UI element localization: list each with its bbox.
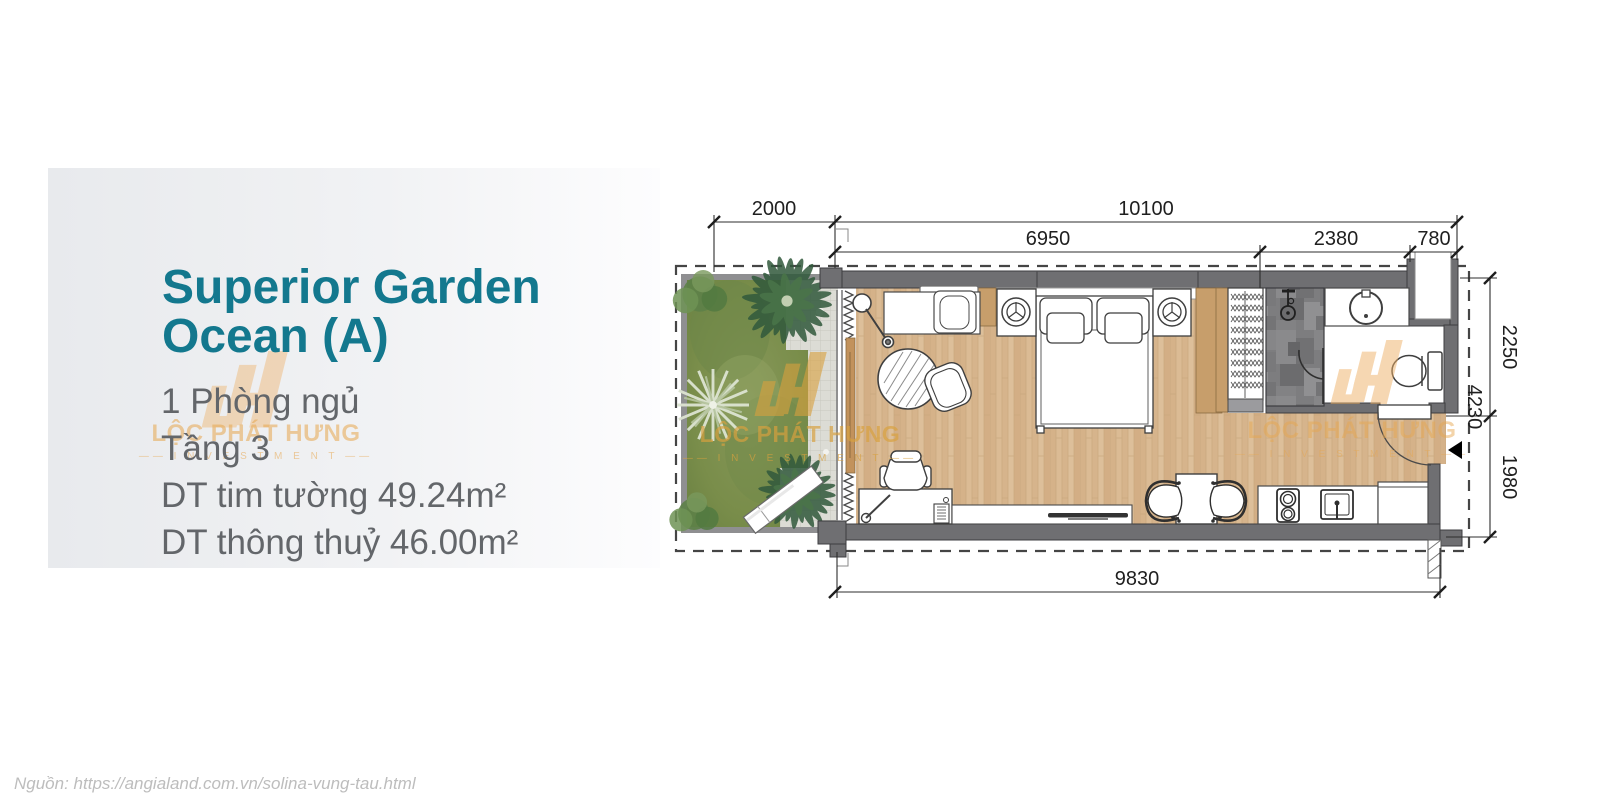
svg-text:780: 780 <box>1417 228 1450 250</box>
svg-text:Nguồn: https://angialand.com.v: Nguồn: https://angialand.com.vn/solina-v… <box>14 774 417 793</box>
svg-text:Ocean (A): Ocean (A) <box>162 310 389 363</box>
svg-text:Tầng 3: Tầng 3 <box>161 429 270 468</box>
svg-text:4230: 4230 <box>1463 385 1485 430</box>
svg-text:DT tim tường 49.24m²: DT tim tường 49.24m² <box>161 476 506 515</box>
svg-text:2000: 2000 <box>752 198 797 220</box>
svg-text:1980: 1980 <box>1498 455 1520 500</box>
svg-text:6950: 6950 <box>1026 228 1071 250</box>
svg-text:9830: 9830 <box>1115 568 1160 590</box>
svg-text:10100: 10100 <box>1118 198 1174 220</box>
svg-text:LỘC PHÁT HƯNG: LỘC PHÁT HƯNG <box>1247 416 1456 444</box>
svg-text:2380: 2380 <box>1314 228 1359 250</box>
svg-text:LỘC PHÁT HƯNG: LỘC PHÁT HƯNG <box>700 420 901 447</box>
svg-text:—— I N V E S T M E N T ——: —— I N V E S T M E N T —— <box>1235 449 1469 460</box>
svg-text:Superior Garden: Superior Garden <box>162 261 541 314</box>
svg-text:DT thông thuỷ 46.00m²: DT thông thuỷ 46.00m² <box>161 523 518 562</box>
svg-text:2250: 2250 <box>1498 325 1520 370</box>
svg-text:1 Phòng ngủ: 1 Phòng ngủ <box>161 382 360 421</box>
svg-text:—— I N V E S T M E N T ——: —— I N V E S T M E N T —— <box>683 453 917 464</box>
